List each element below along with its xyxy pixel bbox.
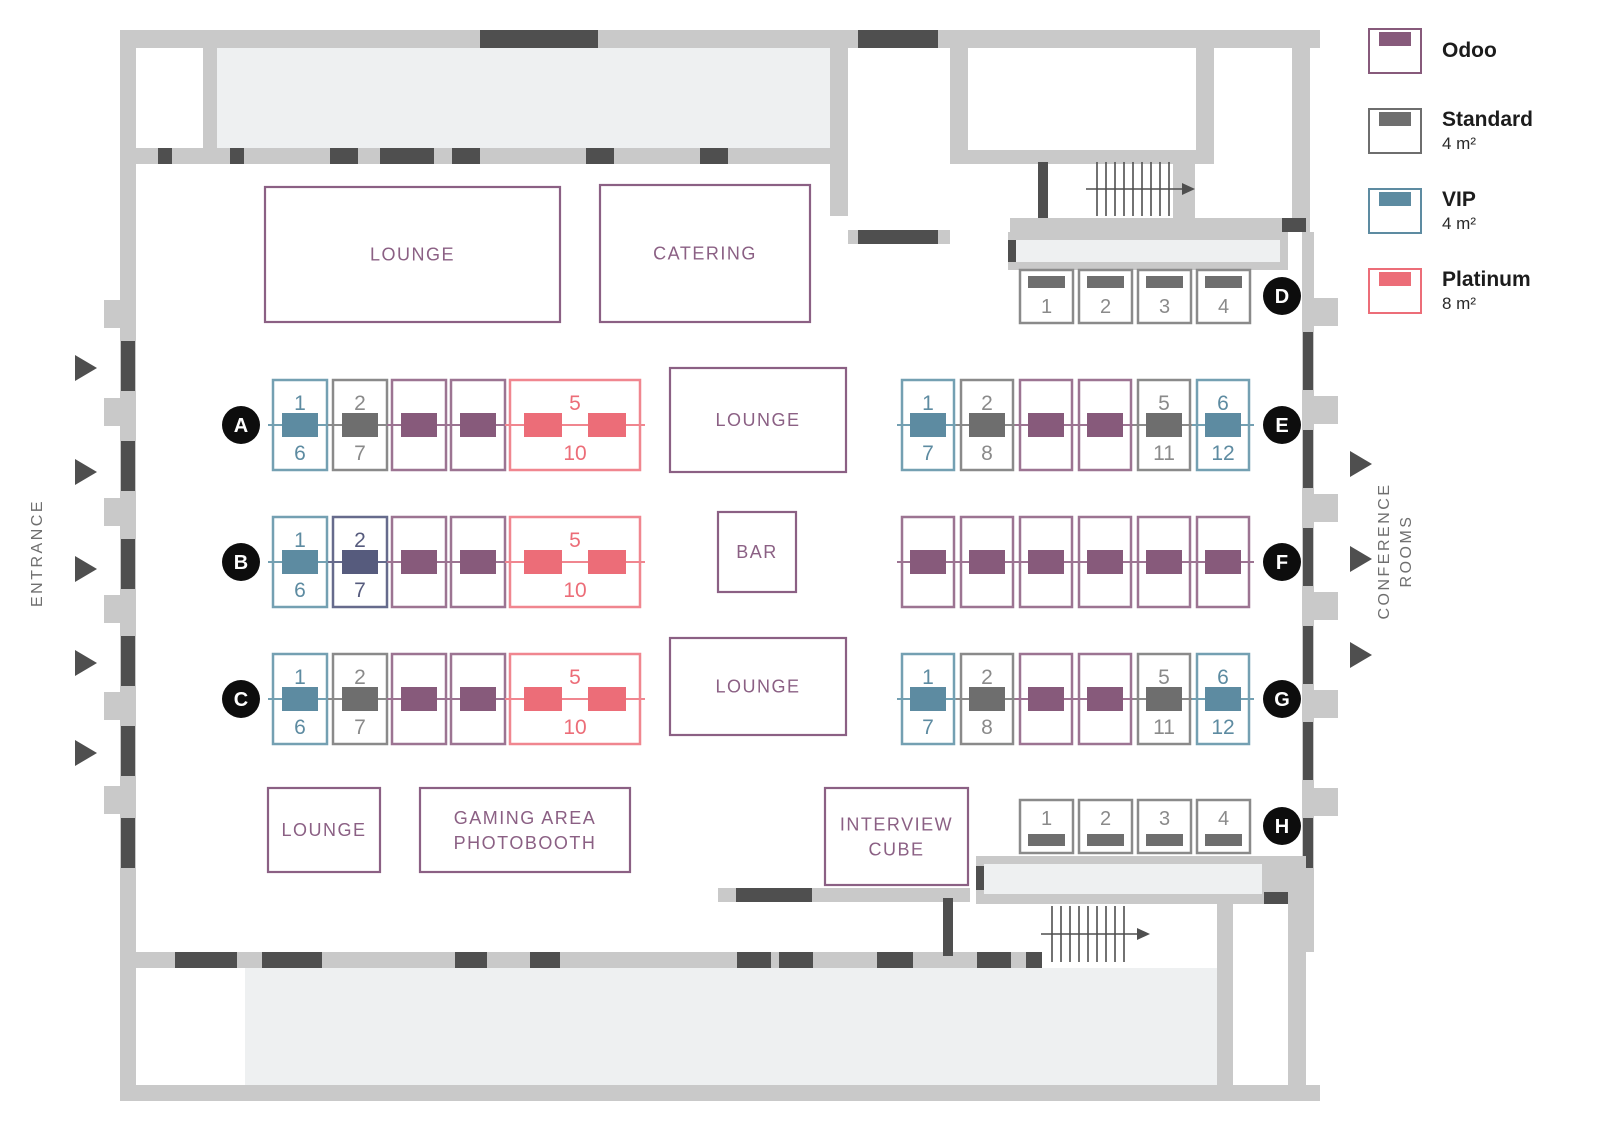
wall-accent xyxy=(1282,218,1306,232)
wall-accent xyxy=(330,148,358,164)
booth-number-top: 5 xyxy=(1158,666,1170,689)
booth-row-E: 1728511612E xyxy=(897,380,1301,470)
legend-size-vip: 4 m² xyxy=(1442,214,1476,234)
booth-table xyxy=(282,413,318,437)
booth-table xyxy=(910,550,946,574)
wall-accent xyxy=(877,952,913,968)
booth-table xyxy=(1087,413,1123,437)
wall-accent xyxy=(858,230,938,244)
wall-accent xyxy=(1026,952,1042,968)
booth-number-top: 2 xyxy=(354,529,366,552)
booth-H-3[interactable]: 3 xyxy=(1138,800,1191,853)
legend: Odoo Standard 4 m² VIP 4 m² Platinum 8 m… xyxy=(1368,28,1533,314)
booth-table xyxy=(910,687,946,711)
wall xyxy=(104,786,136,814)
booth-table xyxy=(524,413,562,437)
legend-item-odoo: Odoo xyxy=(1368,28,1533,74)
wall xyxy=(1302,298,1338,326)
booth-row-D: 1234D xyxy=(1020,270,1301,323)
entrance-arrow-icon xyxy=(75,459,97,485)
booth-table xyxy=(1087,550,1123,574)
wall-accent xyxy=(943,898,953,956)
booth-B-odoo-3[interactable] xyxy=(387,517,451,607)
wall xyxy=(1302,592,1338,620)
booth-table xyxy=(401,687,437,711)
booth-table xyxy=(588,687,626,711)
floor-area xyxy=(217,48,830,148)
booth-number-top: 1 xyxy=(294,666,306,689)
booth-F-odoo-6[interactable] xyxy=(1192,517,1254,607)
booth-A-1-6[interactable]: 16 xyxy=(268,380,332,470)
booth-table xyxy=(910,413,946,437)
booth-table xyxy=(1146,550,1182,574)
booth-E-1-7[interactable]: 17 xyxy=(897,380,959,470)
area-label-line2: CUBE xyxy=(868,840,924,860)
booth-H-2[interactable]: 2 xyxy=(1079,800,1132,853)
area-label: LOUNGE xyxy=(715,677,800,697)
booth-table xyxy=(1028,276,1065,288)
floor-area xyxy=(984,864,1262,894)
booth-number: 4 xyxy=(1218,296,1229,318)
booth-table xyxy=(1087,834,1124,846)
booth-F-odoo-2[interactable] xyxy=(956,517,1018,607)
wall-accent xyxy=(455,952,487,968)
booth-E-odoo-4[interactable] xyxy=(1074,380,1136,470)
wall xyxy=(1302,788,1338,816)
booth-row-B: 1627510B xyxy=(222,517,645,607)
booth-A-odoo-4[interactable] xyxy=(446,380,510,470)
booth-G-5-11[interactable]: 511 xyxy=(1133,654,1195,744)
entrance-arrow-icon xyxy=(75,355,97,381)
row-badge-D: D xyxy=(1263,277,1301,315)
area-label-line1: GAMING AREA xyxy=(454,808,597,828)
area-gaming-photobooth: GAMING AREAPHOTOBOOTH xyxy=(420,788,630,872)
booth-table xyxy=(1028,834,1065,846)
booth-E-odoo-3[interactable] xyxy=(1015,380,1077,470)
booth-table xyxy=(969,413,1005,437)
booth-odoo-icon xyxy=(1368,28,1422,74)
booth-number: 1 xyxy=(1041,808,1052,830)
booth-number-bottom: 8 xyxy=(981,716,993,739)
booth-number-bottom: 6 xyxy=(294,442,306,465)
wall xyxy=(120,30,1320,48)
wall-accent xyxy=(1303,332,1313,390)
booth-number-bottom: 7 xyxy=(922,442,934,465)
wall-accent xyxy=(380,148,434,164)
booth-table xyxy=(969,550,1005,574)
booth-number-top: 5 xyxy=(1158,392,1170,415)
booth-table xyxy=(460,413,496,437)
floor-area xyxy=(1016,240,1280,262)
booth-B-5-10[interactable]: 510 xyxy=(505,517,645,607)
booth-number: 1 xyxy=(1041,296,1052,318)
svg-text:E: E xyxy=(1275,415,1288,437)
wall-accent xyxy=(700,148,728,164)
wall-accent xyxy=(530,952,560,968)
booth-G-6-12[interactable]: 612 xyxy=(1192,654,1254,744)
booth-table xyxy=(1205,276,1242,288)
conference-rooms-label-line1: CONFERENCE xyxy=(1376,482,1393,619)
booth-table xyxy=(969,687,1005,711)
floor-area xyxy=(245,968,1217,1085)
row-badge-H: H xyxy=(1263,807,1301,845)
area-catering: CATERING xyxy=(600,185,810,322)
svg-text:H: H xyxy=(1275,816,1289,838)
booth-number-top: 2 xyxy=(981,392,993,415)
booth-table xyxy=(282,687,318,711)
wall-accent xyxy=(175,952,237,968)
area-lounge-center-top: LOUNGE xyxy=(670,368,846,472)
booth-number-top: 2 xyxy=(981,666,993,689)
booth-number-top: 1 xyxy=(922,392,934,415)
booth-table xyxy=(1205,687,1241,711)
booth-table xyxy=(524,687,562,711)
wall-accent xyxy=(121,539,135,589)
wall-accent xyxy=(1303,528,1313,586)
booth-E-2-8[interactable]: 28 xyxy=(956,380,1018,470)
wall xyxy=(950,48,968,164)
row-badge-C: C xyxy=(222,680,260,718)
wall-accent xyxy=(1038,162,1048,218)
booth-number-top: 6 xyxy=(1217,666,1229,689)
wall-accent xyxy=(586,148,614,164)
legend-size-platinum: 8 m² xyxy=(1442,294,1531,314)
booth-table xyxy=(1146,687,1182,711)
booth-row-C: 1627510C xyxy=(222,654,645,744)
booth-number-bottom: 10 xyxy=(563,579,586,602)
wall xyxy=(104,300,136,328)
svg-text:A: A xyxy=(234,415,248,437)
booth-E-6-12[interactable]: 612 xyxy=(1192,380,1254,470)
booth-number-top: 5 xyxy=(569,392,581,415)
svg-text:C: C xyxy=(234,689,248,711)
wall-accent xyxy=(121,341,135,391)
svg-text:G: G xyxy=(1274,689,1290,711)
wall xyxy=(1302,494,1338,522)
booth-F-odoo-3[interactable] xyxy=(1015,517,1077,607)
booth-row-G: 1728511612G xyxy=(897,654,1301,744)
area-label-line2: PHOTOBOOTH xyxy=(454,833,597,853)
booth-table xyxy=(1028,413,1064,437)
wall-accent xyxy=(1008,240,1016,262)
booth-H-4[interactable]: 4 xyxy=(1197,800,1250,853)
floor-plan: LOUNGECATERINGLOUNGEBARLOUNGELOUNGEGAMIN… xyxy=(0,0,1600,1124)
area-label: LOUNGE xyxy=(281,820,366,840)
booth-table xyxy=(342,687,378,711)
wall-accent xyxy=(1264,892,1288,904)
wall-accent xyxy=(976,866,984,890)
booth-table xyxy=(588,550,626,574)
booth-number: 2 xyxy=(1100,808,1111,830)
booth-table xyxy=(1146,834,1183,846)
booth-number-bottom: 7 xyxy=(354,442,366,465)
booth-table xyxy=(524,550,562,574)
booth-number-top: 1 xyxy=(294,529,306,552)
wall-accent xyxy=(1303,626,1313,684)
booth-A-5-10[interactable]: 510 xyxy=(505,380,645,470)
wall xyxy=(104,498,136,526)
booth-number-bottom: 10 xyxy=(563,442,586,465)
wall-accent xyxy=(480,30,598,48)
booth-number: 4 xyxy=(1218,808,1229,830)
booth-G-odoo-4[interactable] xyxy=(1074,654,1136,744)
wall xyxy=(104,595,136,623)
booth-table xyxy=(588,413,626,437)
area-label: CATERING xyxy=(653,244,757,264)
booth-number-bottom: 6 xyxy=(294,579,306,602)
area-label: LOUNGE xyxy=(370,245,455,265)
booth-number-bottom: 11 xyxy=(1153,716,1175,739)
row-badge-B: B xyxy=(222,543,260,581)
wall xyxy=(1302,690,1338,718)
wall xyxy=(950,150,1214,164)
booth-table xyxy=(282,550,318,574)
booth-D-3[interactable]: 3 xyxy=(1138,270,1191,323)
booth-G-2-8[interactable]: 28 xyxy=(956,654,1018,744)
booth-table xyxy=(401,413,437,437)
booth-F-odoo-4[interactable] xyxy=(1074,517,1136,607)
conference-arrow-icon xyxy=(1350,451,1372,477)
booth-table xyxy=(1087,687,1123,711)
booth-G-odoo-3[interactable] xyxy=(1015,654,1077,744)
booth-table xyxy=(1087,276,1124,288)
booth-table xyxy=(1205,834,1242,846)
wall-accent xyxy=(736,888,812,902)
wall-accent xyxy=(1303,722,1313,780)
booth-number-bottom: 7 xyxy=(922,716,934,739)
conference-rooms-label-line2: ROOMS xyxy=(1398,515,1415,588)
entrance-arrow-icon xyxy=(75,740,97,766)
booth-platinum-icon xyxy=(1368,268,1422,314)
wall xyxy=(203,48,217,148)
booth-C-odoo-4[interactable] xyxy=(446,654,510,744)
booth-B-2-7[interactable]: 27 xyxy=(328,517,392,607)
row-badge-G: G xyxy=(1263,680,1301,718)
wall-accent xyxy=(779,952,813,968)
wall xyxy=(1217,904,1233,1085)
booth-number-top: 1 xyxy=(294,392,306,415)
svg-text:F: F xyxy=(1276,552,1288,574)
wall xyxy=(104,398,136,426)
wall-accent xyxy=(121,818,135,868)
area-label: BAR xyxy=(736,542,778,562)
booth-A-2-7[interactable]: 27 xyxy=(328,380,392,470)
booth-B-1-6[interactable]: 16 xyxy=(268,517,332,607)
wall xyxy=(1010,218,1294,232)
booth-G-1-7[interactable]: 17 xyxy=(897,654,959,744)
booth-number-bottom: 7 xyxy=(354,579,366,602)
row-badge-F: F xyxy=(1263,543,1301,581)
wall-accent xyxy=(121,726,135,776)
booth-table xyxy=(342,413,378,437)
booth-table xyxy=(460,687,496,711)
booth-F-odoo-1[interactable] xyxy=(897,517,959,607)
booth-C-odoo-3[interactable] xyxy=(387,654,451,744)
booth-row-H: 1234H xyxy=(1020,800,1301,853)
booth-table xyxy=(1205,550,1241,574)
wall xyxy=(830,48,848,216)
booth-number-top: 2 xyxy=(354,666,366,689)
booth-table xyxy=(1146,276,1183,288)
booth-number-bottom: 10 xyxy=(563,716,586,739)
booth-number: 2 xyxy=(1100,296,1111,318)
stairs-direction-arrow-icon xyxy=(1137,928,1150,940)
area-lounge-bottom: LOUNGE xyxy=(268,788,380,872)
wall-accent xyxy=(158,148,172,164)
legend-label-odoo: Odoo xyxy=(1442,28,1497,62)
booth-number-bottom: 11 xyxy=(1153,442,1175,465)
booth-C-2-7[interactable]: 27 xyxy=(328,654,392,744)
booth-vip-icon xyxy=(1368,188,1422,234)
area-lounge-top: LOUNGE xyxy=(265,187,560,322)
booth-number-bottom: 6 xyxy=(294,716,306,739)
legend-label-platinum: Platinum xyxy=(1442,268,1531,291)
booth-number-bottom: 8 xyxy=(981,442,993,465)
booth-table xyxy=(1205,413,1241,437)
entrance-label: ENTRANCE xyxy=(29,499,46,607)
area-lounge-center-bottom: LOUNGE xyxy=(670,638,846,735)
legend-label-vip: VIP xyxy=(1442,188,1476,211)
wall xyxy=(120,1085,1320,1101)
wall-accent xyxy=(858,30,938,48)
row-badge-A: A xyxy=(222,406,260,444)
booth-number-top: 6 xyxy=(1217,392,1229,415)
entrance-arrow-icon xyxy=(75,556,97,582)
wall xyxy=(1292,30,1310,232)
legend-item-platinum: Platinum 8 m² xyxy=(1368,268,1533,314)
area-label: LOUNGE xyxy=(715,410,800,430)
booth-table xyxy=(401,550,437,574)
booth-A-odoo-3[interactable] xyxy=(387,380,451,470)
booth-number-bottom: 7 xyxy=(354,716,366,739)
area-bar: BAR xyxy=(718,512,796,592)
booth-number-top: 1 xyxy=(922,666,934,689)
booth-number-top: 5 xyxy=(569,529,581,552)
booth-F-odoo-5[interactable] xyxy=(1133,517,1195,607)
wall-accent xyxy=(1303,430,1313,488)
wall xyxy=(1302,396,1338,424)
wall xyxy=(104,692,136,720)
wall-accent xyxy=(230,148,244,164)
booth-C-5-10[interactable]: 510 xyxy=(505,654,645,744)
booth-D-4[interactable]: 4 xyxy=(1197,270,1250,323)
booth-E-5-11[interactable]: 511 xyxy=(1133,380,1195,470)
booth-table xyxy=(1146,413,1182,437)
floor-plan-svg: LOUNGECATERINGLOUNGEBARLOUNGELOUNGEGAMIN… xyxy=(0,0,1600,1124)
booth-table xyxy=(1028,550,1064,574)
booth-B-odoo-4[interactable] xyxy=(446,517,510,607)
wall-accent xyxy=(262,952,322,968)
booth-table xyxy=(342,550,378,574)
booth-table xyxy=(460,550,496,574)
area-interview-cube: INTERVIEWCUBE xyxy=(825,788,968,885)
booth-number: 3 xyxy=(1159,808,1170,830)
wall-accent xyxy=(977,952,1011,968)
legend-item-vip: VIP 4 m² xyxy=(1368,188,1533,234)
booth-D-1[interactable]: 1 xyxy=(1020,270,1073,323)
booth-number-bottom: 12 xyxy=(1211,716,1234,739)
booth-standard-icon xyxy=(1368,108,1422,154)
booth-C-1-6[interactable]: 16 xyxy=(268,654,332,744)
booth-number: 3 xyxy=(1159,296,1170,318)
svg-text:D: D xyxy=(1275,286,1289,308)
area-label-line1: INTERVIEW xyxy=(840,815,953,835)
row-badge-E: E xyxy=(1263,406,1301,444)
wall xyxy=(1288,856,1306,1101)
stairs-bottom-icon xyxy=(1041,906,1150,962)
wall xyxy=(1196,48,1214,164)
conference-arrow-icon xyxy=(1350,546,1372,572)
booth-number-bottom: 12 xyxy=(1211,442,1234,465)
legend-size-standard: 4 m² xyxy=(1442,134,1533,154)
wall-accent xyxy=(121,441,135,491)
wall-accent xyxy=(452,148,480,164)
svg-text:B: B xyxy=(234,552,248,574)
booth-row-A: 1627510A xyxy=(222,380,645,470)
booth-row-F: F xyxy=(897,517,1301,607)
wall-accent xyxy=(737,952,771,968)
conference-arrow-icon xyxy=(1350,642,1372,668)
legend-label-standard: Standard xyxy=(1442,108,1533,131)
booth-number-top: 2 xyxy=(354,392,366,415)
entrance-arrow-icon xyxy=(75,650,97,676)
booth-D-2[interactable]: 2 xyxy=(1079,270,1132,323)
wall-accent xyxy=(121,636,135,686)
booth-number-top: 5 xyxy=(569,666,581,689)
booth-H-1[interactable]: 1 xyxy=(1020,800,1073,853)
booth-table xyxy=(1028,687,1064,711)
legend-item-standard: Standard 4 m² xyxy=(1368,108,1533,154)
